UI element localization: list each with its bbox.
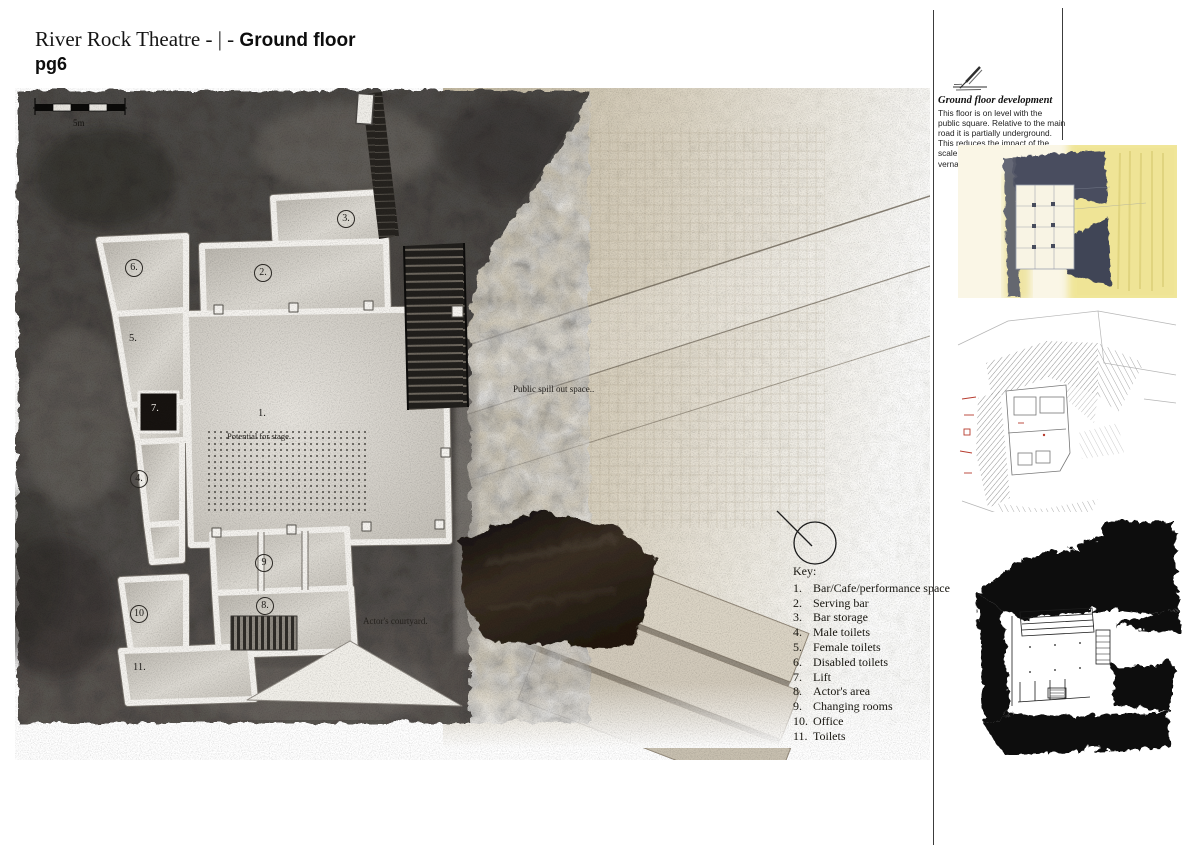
page-title: River Rock Theatre - | - Ground floor (35, 26, 356, 53)
development-sketch-yellow (958, 145, 1177, 298)
room-marker-3: 3. (337, 210, 355, 228)
development-sketch-pencil (948, 303, 1180, 525)
room-marker-6: 6. (125, 259, 143, 277)
room-marker-9: 9 (255, 554, 273, 572)
page-number: pg6 (35, 53, 356, 76)
room-marker-5: 5. (129, 331, 137, 346)
annotation-public-space: Public spill out space.. (513, 384, 594, 394)
page-title-emphasis: Ground floor (239, 30, 355, 51)
room-marker-2: 2. (254, 264, 272, 282)
room-marker-10: 10 (130, 605, 148, 623)
sidebar-divider (933, 10, 934, 845)
sidebar-heading: Ground floor development (938, 95, 1073, 106)
room-marker-8: 8. (256, 597, 274, 615)
portfolio-page: { "header": { "title_prefix": "River Roc… (0, 0, 1200, 848)
room-marker-1: 1. (258, 406, 266, 421)
room-marker-4: 4. (130, 470, 148, 488)
annotation-courtyard: Actor's courtyard. (363, 616, 428, 626)
page-header: River Rock Theatre - | - Ground floor pg… (35, 26, 356, 75)
room-marker-7: 7. (151, 401, 159, 416)
ground-floor-plan-image: 5m Potential for stage. Public spill out… (15, 88, 930, 760)
room-marker-11: 11. (133, 660, 146, 675)
pencil-icon (950, 64, 992, 94)
page-title-prefix: River Rock Theatre - | - (35, 27, 239, 51)
development-sketch-ink (960, 512, 1185, 755)
annotation-stage: Potential for stage. (227, 431, 291, 441)
